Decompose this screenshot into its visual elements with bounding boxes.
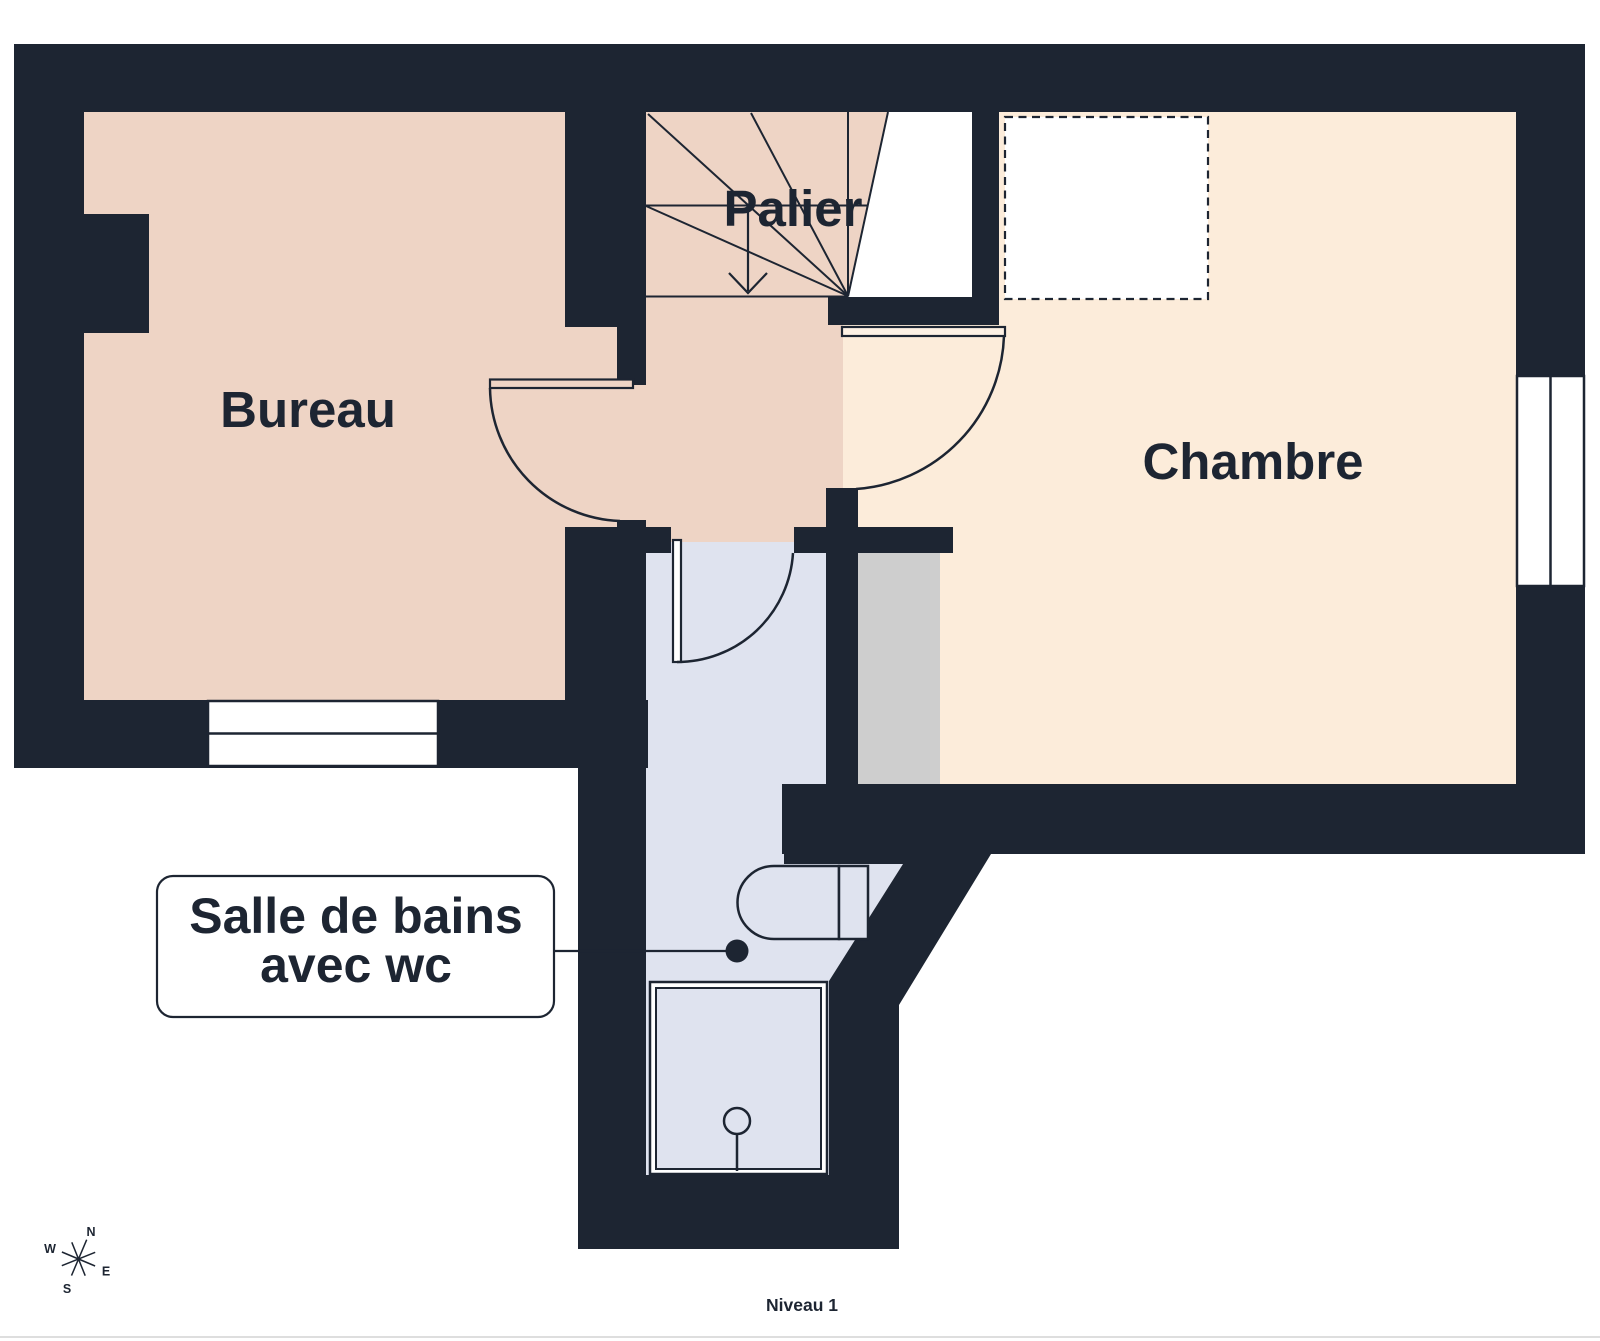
svg-text:Salle de bains: Salle de bains <box>189 888 522 944</box>
svg-text:N: N <box>86 1225 95 1239</box>
svg-text:Chambre: Chambre <box>1142 433 1363 490</box>
svg-text:S: S <box>63 1282 71 1296</box>
svg-text:E: E <box>102 1265 110 1279</box>
svg-text:avec wc: avec wc <box>260 937 452 993</box>
svg-text:Bureau: Bureau <box>220 381 396 438</box>
svg-text:Niveau 1: Niveau 1 <box>766 1295 838 1315</box>
svg-text:W: W <box>44 1242 56 1256</box>
svg-text:Palier: Palier <box>724 180 863 237</box>
